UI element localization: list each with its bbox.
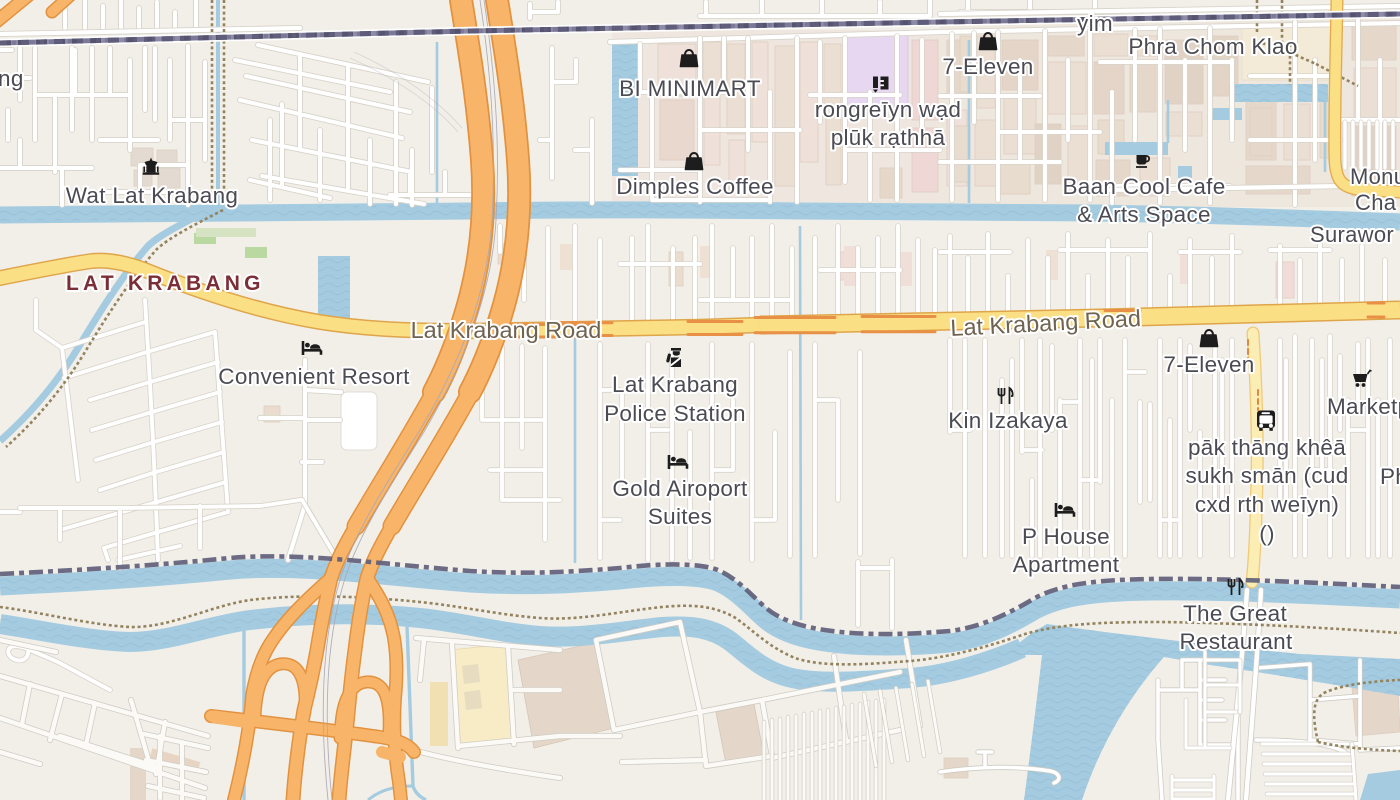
svg-text:& Arts Space: & Arts Space [1077, 202, 1211, 227]
svg-text:Convenient Resort: Convenient Resort [218, 364, 410, 389]
svg-text:7-Eleven: 7-Eleven [942, 54, 1033, 79]
svg-text:7-Eleven: 7-Eleven [1163, 352, 1254, 377]
svg-text:Restaurant: Restaurant [1179, 629, 1293, 654]
svg-text:P House: P House [1022, 524, 1110, 549]
svg-text:sukh smān (cud: sukh smān (cud [1185, 463, 1348, 488]
svg-text:Wat Lat Krabang: Wat Lat Krabang [66, 183, 239, 208]
svg-text:Phra Chom Klao: Phra Chom Klao [1128, 34, 1297, 59]
svg-text:Ph: Ph [1380, 464, 1400, 489]
svg-text:BI MINIMART: BI MINIMART [619, 76, 761, 101]
svg-text:LAT KRABANG: LAT KRABANG [66, 272, 265, 295]
svg-text:pāk thāng khêā: pāk thāng khêā [1188, 435, 1346, 460]
svg-text:Marketpla: Marketpla [1327, 394, 1400, 419]
svg-text:plūk rạthhā: plūk rạthhā [831, 125, 946, 150]
svg-text:(): () [1259, 521, 1275, 546]
svg-text:The Great: The Great [1183, 601, 1287, 626]
svg-text:Baan Cool Cafe: Baan Cool Cafe [1062, 174, 1225, 199]
svg-text:Police Station: Police Station [604, 401, 746, 426]
svg-text:Kin Izakaya: Kin Izakaya [948, 408, 1068, 433]
svg-text:Gold Airoport: Gold Airoport [612, 476, 748, 501]
svg-text:ng: ng [0, 66, 24, 91]
svg-text:Monu: Monu [1350, 164, 1400, 189]
svg-text:Surawor: Surawor [1310, 222, 1394, 247]
svg-text:rongreīyn wạd: rongreīyn wạd [815, 97, 961, 122]
svg-text:Lat Krabang Road: Lat Krabang Road [411, 317, 602, 343]
svg-text:Cha: Cha [1355, 190, 1397, 215]
svg-text:Suites: Suites [648, 504, 712, 529]
svg-text:Apartment: Apartment [1013, 552, 1120, 577]
svg-text:Dimples Coffee: Dimples Coffee [616, 174, 774, 199]
svg-text:Lat Krabang: Lat Krabang [612, 372, 738, 397]
svg-text:cxd rth weīyn): cxd rth weīyn) [1195, 492, 1339, 517]
svg-text:yim: yim [1077, 11, 1113, 36]
